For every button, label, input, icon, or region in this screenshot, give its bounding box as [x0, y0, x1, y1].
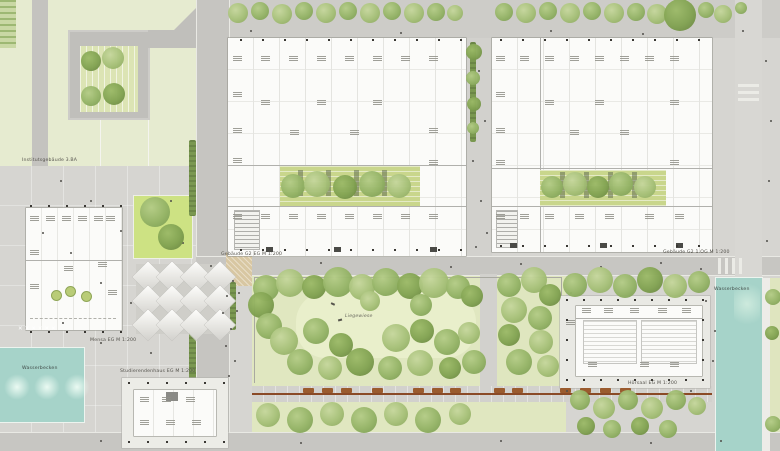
- tree-canopy: [587, 267, 613, 293]
- room-label-mark: [670, 362, 679, 368]
- column-dot: [128, 441, 130, 443]
- tree-canopy: [637, 267, 663, 293]
- column-dot: [566, 299, 568, 301]
- room-label-mark: [605, 214, 614, 220]
- tree-canopy: [383, 2, 401, 20]
- tree-canopy: [613, 274, 637, 298]
- tree-canopy: [604, 3, 624, 23]
- water-right-label: Wasserbecken: [714, 286, 750, 291]
- tree-canopy: [295, 2, 313, 20]
- column-dot: [416, 39, 418, 41]
- person-dot: [486, 232, 488, 234]
- column-dot: [416, 249, 418, 251]
- tree-canopy: [501, 297, 527, 323]
- room-label-mark: [575, 214, 584, 220]
- tree-canopy: [359, 171, 385, 197]
- tree-canopy: [102, 47, 124, 69]
- column-dot: [566, 379, 568, 381]
- room-label-mark: [640, 362, 649, 368]
- tree-canopy: [497, 273, 521, 297]
- column-dot: [544, 245, 546, 247]
- mensa-table: [81, 291, 92, 302]
- room-label-mark: [429, 214, 438, 220]
- room-label-mark: [401, 214, 410, 220]
- room-label-mark: [350, 130, 359, 136]
- tree-canopy: [410, 319, 434, 343]
- building-g2-eg-label: Gebäude G2 EG M 1:200: [221, 251, 282, 256]
- room-label-mark: [106, 216, 115, 222]
- person-dot: [210, 265, 212, 267]
- room-label-mark: [64, 266, 73, 272]
- tree-canopy: [627, 3, 645, 21]
- tree-canopy: [634, 176, 656, 198]
- column-dot: [566, 245, 568, 247]
- room-label-mark: [670, 56, 679, 62]
- column-dot: [460, 249, 462, 251]
- column-dot: [394, 249, 396, 251]
- tree-canopy: [382, 324, 410, 352]
- tree-canopy: [461, 285, 483, 307]
- crosswalk-bar: [718, 258, 721, 274]
- tree-canopy: [467, 122, 479, 134]
- column-dot: [654, 245, 656, 247]
- column-dot: [702, 379, 704, 381]
- column-dot: [350, 39, 352, 41]
- column-dot: [204, 382, 206, 384]
- tree-canopy: [407, 350, 433, 376]
- column-dot: [566, 39, 568, 41]
- column-dot: [394, 39, 396, 41]
- person-dot: [250, 30, 252, 32]
- person-dot: [150, 352, 152, 354]
- column-dot: [66, 331, 68, 333]
- column-dot: [438, 39, 440, 41]
- room-label-mark: [62, 216, 71, 222]
- column-dot: [698, 245, 700, 247]
- hedge-rows-top-left: [0, 0, 16, 48]
- person-dot: [480, 200, 482, 202]
- lecture-hall-seats: [583, 320, 637, 364]
- person-dot: [714, 330, 716, 332]
- person-dot: [62, 322, 64, 324]
- park-bench: [372, 388, 383, 393]
- column-dot: [128, 382, 130, 384]
- column-dot: [120, 205, 122, 207]
- person-dot: [766, 240, 768, 242]
- room-label-mark: [373, 100, 382, 106]
- room-label-mark: [595, 100, 604, 106]
- tree-canopy: [698, 2, 714, 18]
- tree-canopy: [303, 318, 329, 344]
- person-dot: [60, 180, 62, 182]
- tree-canopy: [593, 397, 615, 419]
- room-label-mark: [496, 128, 505, 134]
- tree-canopy: [287, 349, 313, 375]
- room-label-mark: [520, 214, 529, 220]
- room-label-mark: [496, 214, 505, 220]
- column-dot: [147, 441, 149, 443]
- person-dot: [700, 268, 702, 270]
- column-dot: [651, 299, 653, 301]
- tree-canopy: [447, 5, 463, 21]
- room-label-mark: [290, 130, 299, 136]
- person-dot: [120, 230, 122, 232]
- person-dot: [320, 262, 322, 264]
- column-dot: [166, 441, 168, 443]
- column-dot: [702, 339, 704, 341]
- room-label-mark: [166, 420, 175, 426]
- person-dot: [225, 345, 227, 347]
- mensa-label: Mensa EG M 1:200: [90, 337, 136, 342]
- tree-canopy: [427, 3, 445, 21]
- room-label-mark: [261, 56, 270, 62]
- park-bench: [413, 388, 424, 393]
- tree-canopy: [560, 3, 580, 23]
- column-dot: [654, 39, 656, 41]
- tree-canopy: [372, 268, 400, 296]
- tree-canopy: [659, 420, 677, 438]
- tree-canopy: [539, 2, 557, 20]
- hoersaal-wall: [576, 318, 702, 319]
- tree-canopy: [140, 197, 170, 227]
- person-dot: [770, 120, 772, 122]
- room-label-mark: [545, 100, 554, 106]
- column-dot: [66, 205, 68, 207]
- column-dot: [284, 39, 286, 41]
- room-label-mark: [496, 160, 505, 166]
- tree-canopy: [631, 417, 649, 435]
- hoersaal-label: Hörsaal EG M 1:200: [628, 380, 677, 385]
- person-dot: [520, 263, 522, 265]
- room-label-mark: [289, 56, 298, 62]
- column-dot: [223, 382, 225, 384]
- person-dot: [650, 442, 652, 444]
- tree-canopy: [323, 267, 353, 297]
- lane-top-right: [735, 0, 762, 278]
- person-dot: [130, 302, 132, 304]
- tree-canopy: [316, 3, 336, 23]
- person-dot: [690, 390, 692, 392]
- park-bench: [512, 388, 523, 393]
- tree-canopy: [528, 306, 552, 330]
- person-dot: [484, 120, 486, 122]
- tree-canopy: [618, 390, 638, 410]
- tree-canopy: [583, 2, 601, 20]
- tree-canopy: [281, 174, 305, 198]
- tree-canopy: [228, 3, 248, 23]
- room-label-mark: [289, 214, 298, 220]
- room-label-mark: [30, 250, 39, 256]
- room-label-mark: [162, 397, 171, 403]
- room-label-mark: [98, 262, 107, 268]
- tree-canopy: [570, 390, 590, 410]
- person-dot: [478, 70, 480, 72]
- column-dot: [632, 245, 634, 247]
- tree-canopy: [434, 329, 460, 355]
- road-vertical-left: [32, 0, 48, 166]
- room-label-mark: [30, 216, 39, 222]
- room-label-mark: [186, 397, 195, 403]
- tree-canopy: [539, 284, 561, 306]
- tree-canopy: [320, 402, 344, 426]
- tree-canopy: [541, 176, 563, 198]
- tree-canopy: [458, 322, 480, 344]
- lawn-joint-line: [148, 120, 149, 166]
- person-dot: [236, 310, 238, 312]
- person-dot: [170, 200, 172, 202]
- tree-canopy: [563, 172, 587, 196]
- column-dot: [284, 249, 286, 251]
- room-label-mark: [604, 308, 613, 314]
- tree-canopy: [609, 172, 633, 196]
- tree-canopy: [351, 407, 377, 433]
- tree-canopy: [449, 403, 471, 425]
- column-dot: [698, 39, 700, 41]
- column-dot: [617, 299, 619, 301]
- crosswalk-bar: [738, 91, 759, 94]
- room-label-mark: [520, 56, 529, 62]
- person-dot: [550, 30, 552, 32]
- tree-canopy: [666, 390, 686, 410]
- room-label-mark: [401, 56, 410, 62]
- column-dot: [204, 441, 206, 443]
- tree-canopy: [387, 174, 411, 198]
- tree-canopy: [404, 3, 424, 23]
- column-dot: [328, 249, 330, 251]
- column-dot: [583, 299, 585, 301]
- tree-canopy: [498, 324, 520, 346]
- person-dot: [42, 232, 44, 234]
- fountain-glow: [34, 374, 60, 400]
- person-dot: [566, 390, 568, 392]
- person-dot: [70, 252, 72, 254]
- building-wall: [492, 206, 712, 207]
- tree-canopy: [415, 407, 441, 433]
- person-dot: [300, 442, 302, 444]
- room-label-mark: [317, 214, 326, 220]
- building-wall: [540, 38, 541, 252]
- crosswalk-bar: [739, 258, 742, 274]
- tree-canopy: [529, 330, 553, 354]
- room-label-mark: [345, 56, 354, 62]
- column-dot: [676, 245, 678, 247]
- column-dot: [460, 39, 462, 41]
- campus-site-plan: Institutsgebäude 3.BA Gebäude G2 EG M 1:…: [0, 0, 780, 451]
- park-bench: [494, 388, 505, 393]
- room-label-mark: [429, 56, 438, 62]
- tree-canopy: [765, 416, 780, 432]
- entrance-mark: [510, 243, 517, 248]
- column-dot: [240, 39, 242, 41]
- column-dot: [610, 245, 612, 247]
- tree-canopy: [318, 356, 342, 380]
- tree-canopy: [462, 350, 486, 374]
- column-dot: [522, 245, 524, 247]
- room-label-mark: [140, 420, 149, 426]
- column-dot: [600, 379, 602, 381]
- room-label-mark: [233, 56, 242, 62]
- room-label-mark: [645, 56, 654, 62]
- room-label-mark: [588, 362, 597, 368]
- tree-canopy: [765, 326, 779, 340]
- entrance-mark: [430, 247, 437, 252]
- room-label-mark: [670, 160, 679, 166]
- column-dot: [500, 245, 502, 247]
- park-bench: [303, 388, 314, 393]
- column-dot: [84, 205, 86, 207]
- mensa-building: [26, 208, 122, 330]
- person-dot: [500, 440, 502, 442]
- room-label-mark: [429, 128, 438, 134]
- crosswalk-bar: [738, 84, 759, 87]
- column-dot: [84, 331, 86, 333]
- column-dot: [328, 39, 330, 41]
- tree-canopy: [158, 224, 184, 250]
- crosswalk-bar: [725, 258, 728, 274]
- tree-canopy: [537, 355, 559, 377]
- column-dot: [147, 382, 149, 384]
- tree-canopy: [103, 83, 125, 105]
- column-dot: [185, 382, 187, 384]
- room-label-mark: [675, 214, 684, 220]
- lecture-hall-seats: [641, 320, 697, 364]
- column-dot: [566, 339, 568, 341]
- column-dot: [676, 39, 678, 41]
- tree-canopy: [251, 2, 269, 20]
- room-label-mark: [233, 214, 242, 220]
- room-label-mark: [192, 420, 201, 426]
- column-dot: [48, 205, 50, 207]
- person-dot: [642, 33, 644, 35]
- entrance-mark: [334, 247, 341, 252]
- park-bench: [432, 388, 443, 393]
- tree-canopy: [256, 403, 280, 427]
- person-dot: [90, 200, 92, 202]
- liegewiese-label: Liegewiese: [345, 313, 373, 318]
- park-bench: [341, 388, 352, 393]
- person-dot: [228, 375, 230, 377]
- room-label-mark: [140, 397, 149, 403]
- person-dot: [768, 180, 770, 182]
- park-bench: [600, 388, 611, 393]
- entrance-mark: [600, 243, 607, 248]
- column-dot: [223, 441, 225, 443]
- tree-canopy: [287, 407, 313, 433]
- park-bench: [322, 388, 333, 393]
- room-label-mark: [620, 130, 629, 136]
- lawn-joint-line: [100, 120, 101, 166]
- person-dot: [230, 328, 232, 330]
- tree-canopy: [735, 2, 747, 14]
- column-dot: [588, 39, 590, 41]
- room-label-mark: [496, 56, 505, 62]
- tree-canopy: [663, 274, 687, 298]
- room-label-mark: [345, 214, 354, 220]
- column-dot: [372, 249, 374, 251]
- building-g2-og-label: Gebäude G2 1.OG M 1:200: [663, 249, 730, 254]
- person-dot: [720, 440, 722, 442]
- room-label-mark: [261, 100, 270, 106]
- person-dot: [400, 32, 402, 34]
- room-label-mark: [233, 92, 242, 98]
- room-label-mark: [570, 56, 579, 62]
- room-label-mark: [108, 290, 117, 296]
- tree-canopy: [516, 3, 536, 23]
- room-label-mark: [682, 308, 691, 314]
- person-dot: [450, 266, 452, 268]
- demolition-x-marks: ✕ ✕ ✕ ✕ ✕ ✕: [18, 326, 56, 331]
- tree-canopy: [304, 171, 330, 197]
- mensa-table: [65, 286, 76, 297]
- column-dot: [588, 245, 590, 247]
- tree-canopy: [664, 0, 696, 31]
- column-dot: [685, 299, 687, 301]
- room-label-mark: [317, 56, 326, 62]
- tree-canopy: [360, 3, 380, 23]
- room-label-mark: [46, 216, 55, 222]
- room-label-mark: [233, 158, 242, 164]
- person-dot: [660, 262, 662, 264]
- person-dot: [232, 280, 234, 282]
- tree-canopy: [272, 4, 292, 24]
- column-dot: [102, 205, 104, 207]
- column-dot: [600, 299, 602, 301]
- column-dot: [632, 39, 634, 41]
- column-dot: [544, 39, 546, 41]
- person-dot: [475, 246, 477, 248]
- building-wall: [228, 206, 466, 207]
- person-dot: [100, 282, 102, 284]
- tree-canopy: [641, 397, 663, 419]
- room-label-mark: [496, 92, 505, 98]
- room-label-mark: [317, 100, 326, 106]
- tree-canopy: [81, 51, 101, 71]
- crosswalk-bar: [732, 258, 735, 274]
- tree-canopy: [378, 356, 402, 380]
- tree-canopy: [276, 269, 304, 297]
- tree-canopy: [506, 349, 532, 375]
- person-dot: [742, 30, 744, 32]
- room-label-mark: [261, 214, 270, 220]
- tree-canopy: [384, 402, 408, 426]
- column-dot: [350, 249, 352, 251]
- column-dot: [685, 379, 687, 381]
- tree-canopy: [339, 2, 357, 20]
- person-dot: [238, 292, 240, 294]
- column-dot: [30, 205, 32, 207]
- room-label-mark: [30, 284, 39, 290]
- tree-canopy: [765, 289, 780, 305]
- tree-canopy: [466, 44, 482, 60]
- tree-canopy: [714, 5, 732, 23]
- tree-canopy: [466, 71, 480, 85]
- tree-canopy: [688, 397, 706, 415]
- building-g2-eg: [228, 38, 466, 256]
- person-dot: [234, 360, 236, 362]
- crosswalk-bar: [738, 98, 759, 101]
- tree-canopy: [467, 97, 481, 111]
- column-dot: [102, 331, 104, 333]
- tree-canopy: [410, 294, 432, 316]
- room-label-mark: [94, 216, 103, 222]
- water-left-label: Wasserbecken: [22, 365, 58, 370]
- building-wall: [492, 168, 712, 169]
- fountain-glow: [64, 374, 90, 400]
- person-dot: [765, 60, 767, 62]
- column-dot: [668, 299, 670, 301]
- studierendenhaus-label: Studierendenhaus EG M 1:200: [120, 368, 195, 373]
- column-dot: [566, 319, 568, 321]
